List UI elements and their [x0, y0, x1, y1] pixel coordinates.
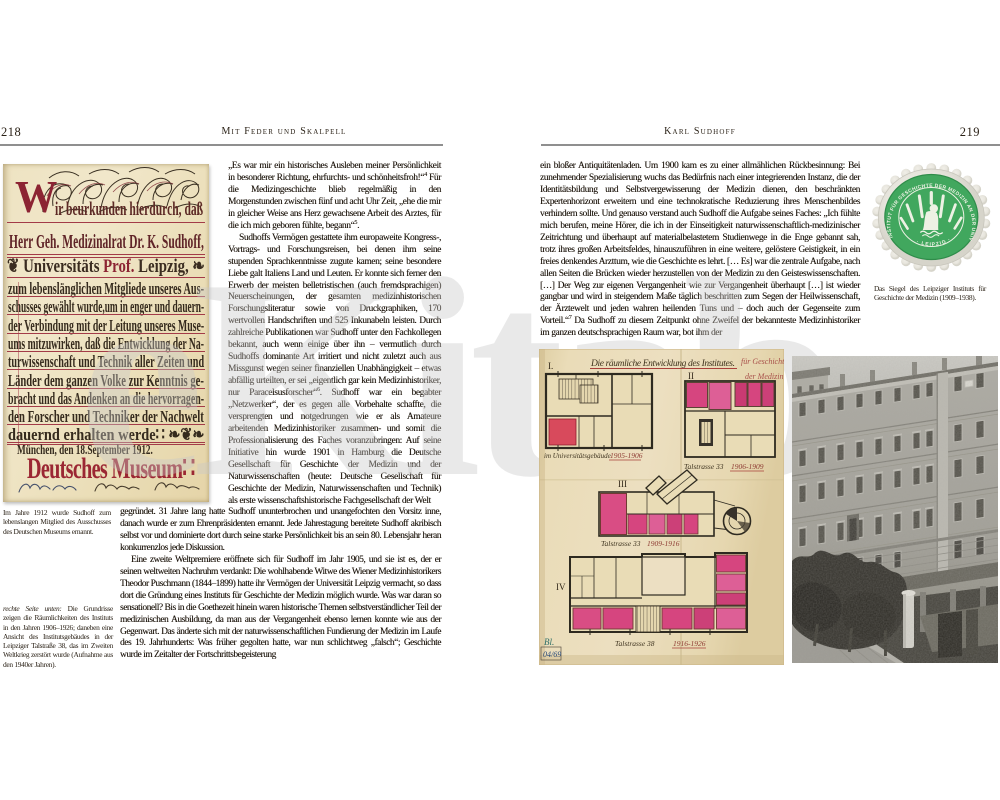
svg-text:1909-1916: 1909-1916: [647, 539, 680, 548]
svg-text:im Universitätsgebäude: im Universitätsgebäude: [544, 452, 611, 460]
svg-text:Die räumliche Entwicklung des: Die räumliche Entwicklung des Institutes…: [590, 359, 735, 369]
svg-text:IV: IV: [556, 582, 566, 592]
svg-text:I.: I.: [548, 361, 553, 371]
svg-text:II: II: [688, 371, 694, 381]
svg-text:1905-1906: 1905-1906: [610, 451, 643, 460]
svg-text:Talstrasse 38: Talstrasse 38: [615, 639, 655, 648]
svg-text:1916-1926: 1916-1926: [673, 639, 706, 648]
svg-text:für Geschichte: für Geschichte: [741, 357, 784, 366]
svg-text:Talstrasse 33: Talstrasse 33: [684, 462, 724, 471]
svg-text:der Medizin,: der Medizin,: [745, 372, 784, 381]
svg-text:1906-1909: 1906-1909: [731, 462, 764, 471]
svg-text:04/69: 04/69: [543, 650, 561, 659]
svg-text:Talstrasse 33: Talstrasse 33: [601, 539, 641, 548]
svg-text:Bl.: Bl.: [544, 637, 554, 647]
svg-text:III: III: [618, 479, 627, 489]
